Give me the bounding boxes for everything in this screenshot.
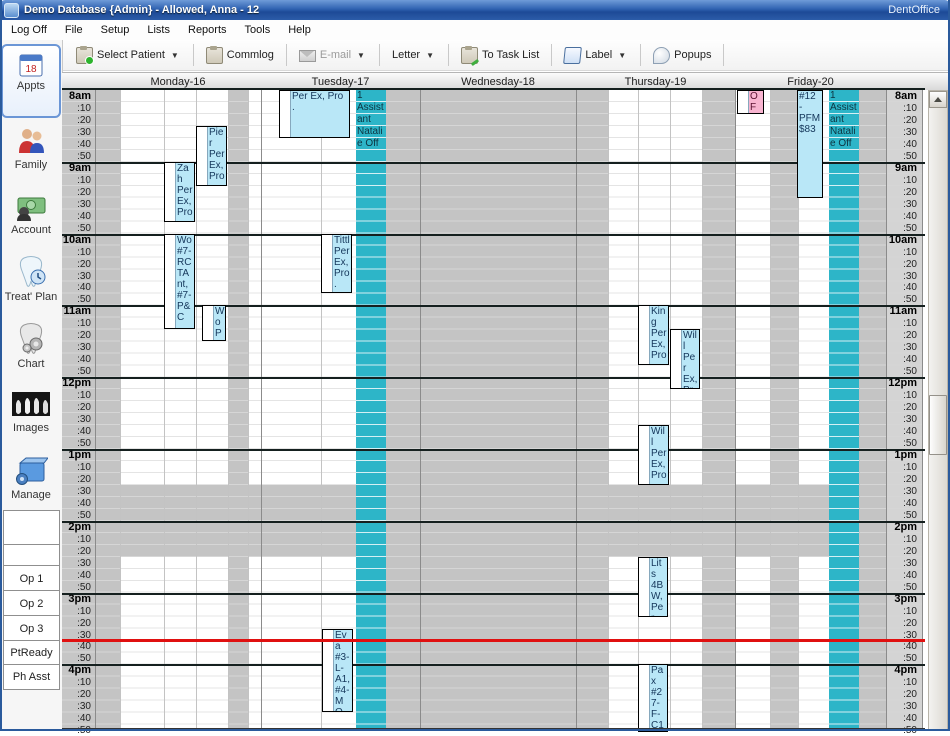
appointment-text: OFF — [749, 91, 763, 113]
time-label-minute: :40 — [62, 282, 91, 293]
popups-label: Popups — [674, 49, 711, 61]
time-label-minute: :30 — [62, 199, 91, 210]
sidebar-item-account[interactable]: Account — [0, 190, 62, 236]
time-label-minute: :10 — [62, 462, 91, 473]
label-icon — [563, 47, 582, 64]
time-label-minute: :10 — [62, 103, 91, 114]
appointment-text: Will Per Ex, Pro . — [650, 426, 668, 484]
menu-bar: Log Off File Setup Lists Reports Tools H… — [2, 20, 948, 41]
time-label-minute: :20 — [62, 689, 91, 700]
day-header-monday: Monday-16 — [95, 72, 262, 90]
time-label-minute: :10 — [886, 534, 917, 545]
time-label-minute: :10 — [62, 175, 91, 186]
time-label-minute: :40 — [886, 211, 917, 222]
appointment[interactable]: Eva #3-L-A1, #4-MO - — [322, 629, 353, 713]
day-header-corner — [62, 72, 96, 90]
open-operatory-column — [120, 90, 228, 729]
provider-color-bar — [322, 235, 333, 293]
sidebar-item-label: Account — [11, 224, 51, 236]
appointment[interactable]: Per Ex, Pro . — [279, 90, 350, 138]
view-button-op1[interactable]: Op 1 — [3, 565, 60, 592]
open-operatory-column — [261, 90, 356, 729]
time-label-minute: :40 — [886, 354, 917, 365]
closed-operatory-column — [859, 90, 886, 729]
time-label-hour: 2pm — [886, 522, 917, 533]
closed-time-band — [95, 485, 886, 557]
time-label-minute: :10 — [62, 677, 91, 688]
day-header-wednesday: Wednesday-18 — [420, 72, 577, 90]
closed-operatory-column — [95, 90, 120, 729]
hour-line — [62, 521, 925, 523]
appointment-text: Lits 4BW, Per Ex, — [650, 558, 667, 616]
operatory-divider — [120, 90, 121, 729]
closed-operatory-column — [228, 90, 248, 729]
time-label-minute: :30 — [886, 342, 917, 353]
time-label-minute: :30 — [62, 701, 91, 712]
sidebar-item-treat-plan[interactable]: Treat' Plan — [0, 255, 62, 303]
appointment[interactable]: Tittl Per Ex, Pro . — [321, 234, 352, 294]
time-label-minute: :10 — [62, 390, 91, 401]
hour-line — [62, 664, 925, 666]
menu-reports[interactable]: Reports — [179, 22, 236, 38]
provider-color-bar — [639, 558, 650, 616]
closed-operatory-column — [386, 90, 420, 729]
time-label-minute: :50 — [886, 366, 917, 377]
view-button-op3[interactable]: Op 3 — [3, 615, 60, 642]
time-label-minute: :10 — [886, 318, 917, 329]
to-task-list-button[interactable]: To Task List — [454, 43, 546, 68]
time-label-minute: :40 — [62, 713, 91, 724]
hour-line — [62, 593, 925, 595]
time-label-minute: :50 — [62, 438, 91, 449]
time-label-minute: :50 — [62, 223, 91, 234]
view-button-phasst[interactable]: Ph Asst — [3, 664, 60, 690]
appointment[interactable]: King Per Ex, Pro . — [638, 305, 669, 365]
time-label-minute: :40 — [886, 426, 917, 437]
schedule-grid[interactable]: 8am8am:10:10:20:20:30:30:40:40:50:509am9… — [0, 0, 950, 731]
time-label-minute: :40 — [62, 211, 91, 222]
sidebar-item-chart[interactable]: Chart — [0, 322, 62, 370]
time-label-hour: 9am — [62, 163, 91, 174]
appointment[interactable]: Pier Per Ex, Pro . — [196, 126, 227, 186]
blockout-column[interactable] — [829, 90, 859, 729]
task-list-icon — [461, 47, 478, 64]
time-label-minute: :20 — [62, 259, 91, 270]
day-divider — [420, 89, 421, 729]
time-label-minute: :50 — [62, 366, 91, 377]
time-label-minute: :20 — [886, 402, 917, 413]
time-label-minute: :30 — [62, 630, 91, 641]
manage-icon — [14, 455, 48, 487]
time-label-minute: :50 — [886, 294, 917, 305]
time-label-minute: :50 — [62, 653, 91, 664]
popups-button[interactable]: Popups — [646, 43, 718, 68]
time-label-minute: :30 — [62, 271, 91, 282]
time-label-minute: :20 — [886, 474, 917, 485]
time-label-minute: :50 — [62, 582, 91, 593]
time-label-minute: :20 — [886, 259, 917, 270]
toolbar-separator — [379, 44, 380, 66]
time-label-minute: :50 — [886, 438, 917, 449]
treat-plan-icon — [14, 255, 48, 289]
module-sidebar: 18 Appts Family Account Treat' Plan — [0, 40, 63, 731]
day-header-corner — [886, 72, 950, 90]
app-icon — [4, 3, 19, 18]
brand-name: DentOffice — [888, 4, 940, 16]
time-label-minute: :30 — [62, 127, 91, 138]
time-label-minute: :40 — [886, 713, 917, 724]
family-icon — [15, 125, 47, 157]
time-label-minute: :10 — [886, 462, 917, 473]
time-label-hour: 9am — [886, 163, 917, 174]
operatory-divider — [638, 90, 639, 729]
appointment-text: Eva #3-L-A1, #4-MO - — [334, 630, 352, 712]
view-button-op2[interactable]: Op 2 — [3, 590, 60, 617]
time-label-hour: 1pm — [62, 450, 91, 461]
time-label-minute: :30 — [62, 558, 91, 569]
appointment[interactable]: Zah Per Ex, Pro . — [164, 162, 195, 222]
time-label-hour: 8am — [62, 91, 91, 102]
appointment-text: Pier Per Ex, Pro . — [208, 127, 226, 185]
appointment[interactable]: Lits 4BW, Per Ex, — [638, 557, 668, 617]
appointment[interactable]: Pax #27-F-C1, #28 — [638, 664, 668, 732]
operatory-divider — [228, 90, 229, 729]
time-label-minute: :20 — [62, 618, 91, 629]
chevron-down-icon[interactable]: ▼ — [424, 51, 436, 60]
time-label-minute: :30 — [62, 486, 91, 497]
popups-icon — [653, 47, 670, 64]
time-label-minute: :30 — [886, 701, 917, 712]
time-label-minute: :20 — [62, 330, 91, 341]
time-label-minute: :40 — [62, 498, 91, 509]
closed-operatory-column — [420, 90, 576, 729]
closed-operatory-column — [770, 90, 798, 729]
chart-icon — [14, 322, 48, 356]
time-label-hour: 10am — [62, 235, 91, 246]
hour-line — [62, 234, 925, 236]
toolbar-separator — [448, 44, 449, 66]
toolbar: Select Patient ▼ Commlog E-mail ▼ Letter… — [2, 40, 948, 71]
sidebar-item-manage[interactable]: Manage — [0, 455, 62, 501]
day-header-tuesday: Tuesday-17 — [261, 72, 421, 90]
appointment-text: Tittl Per Ex, Pro . — [333, 235, 351, 293]
view-slot-blank-2[interactable] — [3, 544, 60, 567]
appointment-text: Per Ex, Pro . — [291, 91, 349, 137]
time-label-hour: 1pm — [886, 450, 917, 461]
sidebar-item-label: Appts — [17, 80, 45, 92]
time-label-minute: :30 — [886, 486, 917, 497]
provider-color-bar — [671, 330, 682, 388]
time-label-hour: 2pm — [62, 522, 91, 533]
time-label-minute: :30 — [886, 630, 917, 641]
appointment[interactable]: Will Per Ex, Pro . — [638, 425, 669, 485]
operatory-divider — [164, 90, 165, 729]
time-label-minute: :10 — [886, 390, 917, 401]
toolbar-separator — [640, 44, 641, 66]
appointment-text: Wo #7-RCTAnt, #7-P&C — [176, 235, 194, 329]
select-patient-label: Select Patient — [97, 49, 165, 61]
time-label-minute: :30 — [886, 271, 917, 282]
hour-line — [62, 449, 925, 451]
time-label-hour: 12pm — [886, 378, 917, 389]
operatory-divider — [702, 90, 703, 729]
chevron-down-icon[interactable]: ▼ — [616, 51, 628, 60]
blockout-column[interactable] — [356, 90, 386, 729]
provider-color-bar — [165, 235, 176, 329]
operatory-divider — [608, 90, 609, 729]
appointment[interactable]: Wo Pro Chi — [202, 305, 226, 341]
time-label-minute: :50 — [886, 582, 917, 593]
toolbar-separator — [723, 44, 724, 66]
hour-line — [62, 305, 925, 307]
time-label-hour: 4pm — [886, 665, 917, 676]
time-label-hour: 11am — [62, 306, 91, 317]
time-label-minute: :10 — [62, 247, 91, 258]
time-label-minute: :20 — [886, 330, 917, 341]
sidebar-item-appts[interactable]: 18 Appts — [1, 44, 61, 118]
day-divider — [95, 89, 96, 729]
operatory-divider — [798, 90, 799, 729]
time-label-minute: :50 — [62, 151, 91, 162]
time-label-hour: 3pm — [886, 594, 917, 605]
time-label-minute: :20 — [886, 689, 917, 700]
open-operatory-column — [608, 90, 702, 729]
time-label-minute: :20 — [886, 187, 917, 198]
provider-color-bar — [639, 306, 650, 364]
time-label-minute: :10 — [886, 175, 917, 186]
label-label: Label — [585, 49, 612, 61]
time-label-hour: 3pm — [62, 594, 91, 605]
day-divider — [261, 89, 262, 729]
time-label-minute: :10 — [886, 247, 917, 258]
email-label: E-mail — [320, 49, 351, 61]
time-label-hour: 4pm — [62, 665, 91, 676]
operatory-divider — [670, 90, 671, 729]
current-time-line — [62, 639, 925, 642]
commlog-label: Commlog — [227, 49, 274, 61]
appointment-text: King Per Ex, Pro . — [650, 306, 668, 364]
appointment[interactable]: Wo #7-RCTAnt, #7-P&C — [164, 234, 195, 330]
time-label-minute: :40 — [62, 139, 91, 150]
time-label-minute: :20 — [62, 187, 91, 198]
sidebar-item-images[interactable]: Images — [0, 388, 62, 434]
select-patient-icon — [76, 47, 93, 64]
operatory-divider — [770, 90, 771, 729]
day-header-thursday: Thursday-19 — [576, 72, 736, 90]
time-label-hour: 12pm — [62, 378, 91, 389]
time-label-minute: :30 — [886, 127, 917, 138]
calendar-icon: 18 — [18, 52, 44, 78]
blockout-note[interactable]: 1 Assistant Natalie Off — [829, 90, 859, 162]
operatory-divider — [196, 90, 197, 729]
time-label-minute: :10 — [62, 606, 91, 617]
title-bar: Demo Database {Admin} - Allowed, Anna - … — [0, 0, 950, 20]
letter-label: Letter — [392, 49, 420, 61]
time-label-minute: :50 — [886, 151, 917, 162]
view-slot-blank-1[interactable] — [3, 510, 60, 546]
day-divider — [576, 89, 577, 729]
appointment[interactable]: Will Per Ex, Pro . — [670, 329, 700, 389]
scroll-up-button[interactable] — [929, 91, 947, 108]
chevron-down-icon[interactable]: ▼ — [169, 51, 181, 60]
operatory-divider — [248, 90, 249, 729]
provider-color-bar — [280, 91, 291, 137]
commlog-icon — [206, 47, 223, 64]
svg-text:18: 18 — [25, 64, 37, 75]
time-label-minute: :50 — [886, 653, 917, 664]
time-label-minute: :10 — [886, 606, 917, 617]
toolbar-separator — [286, 44, 287, 66]
window-border — [0, 0, 950, 731]
vertical-scrollbar[interactable] — [928, 90, 948, 731]
time-label-minute: :20 — [886, 115, 917, 126]
scrollbar-thumb[interactable] — [929, 395, 947, 455]
email-button[interactable]: E-mail ▼ — [292, 44, 374, 66]
time-label-minute: :50 — [886, 510, 917, 521]
time-label-hour: 8am — [886, 91, 917, 102]
operatory-divider — [859, 90, 860, 729]
day-divider — [886, 89, 887, 729]
commlog-button[interactable]: Commlog — [199, 43, 281, 68]
appointment[interactable]: OFF — [737, 90, 764, 114]
menu-log-off[interactable]: Log Off — [2, 22, 56, 38]
images-icon — [11, 388, 51, 420]
appointment-text: Wo Pro Chi — [214, 306, 225, 340]
time-label-minute: :40 — [886, 641, 917, 652]
time-label-minute: :40 — [62, 354, 91, 365]
menu-file[interactable]: File — [56, 22, 92, 38]
time-label-minute: :10 — [886, 677, 917, 688]
time-label-minute: :40 — [886, 139, 917, 150]
time-label-minute: :50 — [62, 294, 91, 305]
provider-color-bar — [639, 665, 650, 731]
hour-line — [62, 162, 925, 164]
menu-tools[interactable]: Tools — [236, 22, 280, 38]
appointment-text: Zah Per Ex, Pro . — [176, 163, 194, 221]
time-label-minute: :30 — [62, 414, 91, 425]
open-operatory-column — [798, 90, 829, 729]
to-task-list-label: To Task List — [482, 49, 539, 61]
provider-color-bar — [639, 426, 650, 484]
select-patient-button[interactable]: Select Patient ▼ — [69, 43, 188, 68]
time-label-minute: :20 — [886, 546, 917, 557]
appointment[interactable]: #12 - PFM $83 — [797, 90, 823, 198]
time-label-minute: :40 — [886, 570, 917, 581]
closed-operatory-column — [576, 90, 608, 729]
time-label-minute: :30 — [62, 342, 91, 353]
time-label-minute: :30 — [886, 558, 917, 569]
appointment-text: Will Per Ex, Pro . — [682, 330, 699, 388]
letter-button[interactable]: Letter ▼ — [385, 45, 443, 65]
sidebar-item-label: Manage — [11, 489, 51, 501]
toolbar-separator — [193, 44, 194, 66]
account-icon — [14, 190, 48, 222]
time-label-minute: :50 — [62, 510, 91, 521]
time-label-hour: 11am — [886, 306, 917, 317]
provider-color-bar — [165, 163, 176, 221]
closed-operatory-column — [702, 90, 735, 729]
operatory-divider — [321, 90, 322, 729]
time-label-minute: :20 — [62, 546, 91, 557]
time-label-minute: :10 — [886, 103, 917, 114]
label-button[interactable]: Label ▼ — [557, 43, 635, 68]
menu-help[interactable]: Help — [279, 22, 320, 38]
grid-bottom-border — [62, 728, 925, 729]
time-label-minute: :10 — [62, 534, 91, 545]
scroll-up-icon — [934, 97, 942, 102]
provider-color-bar — [323, 630, 334, 712]
time-label-minute: :20 — [62, 115, 91, 126]
time-label-minute: :20 — [62, 402, 91, 413]
time-label-minute: :40 — [62, 570, 91, 581]
view-button-ptready[interactable]: PtReady — [3, 640, 60, 666]
time-label-minute: :40 — [62, 426, 91, 437]
appointment-text: #12 - PFM $83 — [798, 91, 822, 197]
sidebar-item-label: Chart — [18, 358, 45, 370]
time-label-minute: :30 — [886, 414, 917, 425]
time-label-minute: :20 — [886, 618, 917, 629]
time-label-minute: :20 — [62, 474, 91, 485]
menu-lists[interactable]: Lists — [138, 22, 179, 38]
blockout-note[interactable]: 1 Assistant Natalie Off — [356, 90, 386, 162]
sidebar-item-label: Family — [15, 159, 47, 171]
time-label-minute: :40 — [62, 641, 91, 652]
time-column-left — [62, 90, 95, 729]
provider-color-bar — [203, 306, 214, 340]
provider-color-bar — [738, 91, 749, 113]
open-operatory-column — [248, 90, 261, 729]
open-operatory-column — [735, 90, 770, 729]
time-label-hour: 10am — [886, 235, 917, 246]
appointment-text: Pax #27-F-C1, #28 — [650, 665, 667, 731]
provider-color-bar — [197, 127, 208, 185]
time-label-minute: :50 — [886, 223, 917, 234]
email-icon — [299, 50, 316, 62]
time-label-minute: :10 — [62, 318, 91, 329]
time-column-right — [886, 90, 922, 729]
chevron-down-icon[interactable]: ▼ — [355, 51, 367, 60]
day-header-friday: Friday-20 — [735, 72, 887, 90]
sidebar-item-label: Treat' Plan — [5, 291, 57, 303]
time-label-minute: :40 — [886, 498, 917, 509]
time-label-minute: :30 — [886, 199, 917, 210]
toolbar-separator — [551, 44, 552, 66]
time-label-minute: :40 — [886, 282, 917, 293]
menu-setup[interactable]: Setup — [92, 22, 139, 38]
day-divider — [922, 89, 923, 729]
window-title: Demo Database {Admin} - Allowed, Anna - … — [24, 4, 259, 16]
day-divider — [735, 89, 736, 729]
sidebar-item-label: Images — [13, 422, 49, 434]
sidebar-item-family[interactable]: Family — [0, 125, 62, 171]
hour-line — [62, 377, 925, 379]
